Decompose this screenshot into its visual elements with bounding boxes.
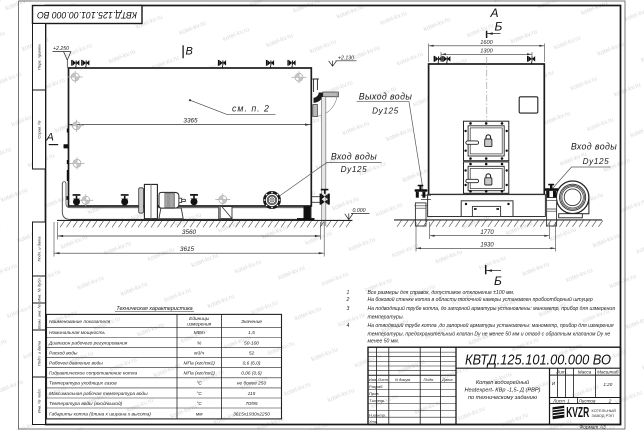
svg-text:Подп.: Подп.	[424, 377, 435, 382]
svg-text:°С: °С	[197, 381, 203, 387]
svg-text:Диапазон рабочего регулировани: Диапазон рабочего регулирования	[48, 340, 128, 346]
svg-text:3365: 3365	[183, 118, 198, 125]
svg-text:Dy125: Dy125	[341, 165, 368, 174]
svg-text:52: 52	[249, 350, 255, 356]
svg-text:2: 2	[608, 398, 612, 403]
svg-text:температуры, предохранительный: температуры, предохранительный клапан Dу…	[368, 331, 611, 338]
svg-text:0,6 (6,0): 0,6 (6,0)	[243, 361, 261, 367]
svg-text:1: 1	[567, 398, 570, 403]
svg-text:Б: Б	[495, 20, 503, 34]
svg-text:50-100: 50-100	[244, 340, 259, 346]
svg-text:Справ. №: Справ. №	[37, 120, 42, 139]
svg-text:1300: 1300	[480, 49, 493, 55]
svg-text:МВт: МВт	[194, 330, 205, 336]
svg-text:Heatexpert- КВр -1,5- Д (РВР): Heatexpert- КВр -1,5- Д (РВР)	[465, 388, 541, 394]
svg-text:Dy125: Dy125	[583, 157, 610, 166]
svg-text:Формат А3: Формат А3	[579, 424, 606, 430]
svg-text:Dy125: Dy125	[372, 107, 399, 116]
svg-text:°С: °С	[197, 401, 203, 407]
svg-text:2: 2	[346, 297, 350, 303]
svg-text:менее 50 мм.: менее 50 мм.	[368, 339, 400, 345]
svg-text:Изм.: Изм.	[369, 377, 378, 382]
svg-text:А: А	[46, 132, 54, 144]
svg-text:Температура уходящих газов: Температура уходящих газов	[49, 381, 117, 387]
svg-text:МПа (кгс/см2): МПа (кгс/см2)	[184, 361, 216, 367]
svg-text:не более 250: не более 250	[237, 381, 267, 387]
svg-text:см. п. 2: см. п. 2	[232, 104, 270, 114]
svg-text:Гидравлическое сопротивление к: Гидравлическое сопротивление котла	[49, 371, 137, 377]
svg-text:°С: °С	[197, 391, 203, 397]
svg-text:1:20: 1:20	[603, 382, 612, 387]
svg-text:Лист: Лист	[377, 377, 389, 382]
svg-text:Лист: Лист	[552, 398, 565, 403]
svg-text:измерения: измерения	[187, 322, 211, 327]
svg-text:1770: 1770	[480, 230, 494, 236]
svg-text:Вход воды: Вход воды	[571, 142, 617, 152]
svg-text:Температура воды (вход/выход): Температура воды (вход/выход)	[49, 401, 123, 407]
svg-text:Значение: Значение	[241, 319, 262, 325]
svg-text:Наименование показателя: Наименование показателя	[49, 319, 111, 325]
svg-text:Дата: Дата	[441, 377, 453, 382]
svg-text:МПа (кгс/см2): МПа (кгс/см2)	[184, 371, 216, 377]
svg-text:Номинальная мощность: Номинальная мощность	[49, 330, 106, 336]
svg-text:Единицы: Единицы	[189, 316, 210, 322]
svg-text:0,06 (0,6): 0,06 (0,6)	[241, 371, 262, 377]
svg-text:На подводящий трубе котла, д: На подводящий трубе котла, до запорной а…	[368, 305, 616, 312]
svg-text:1600: 1600	[480, 40, 493, 46]
svg-text:KVZR: KVZR	[566, 405, 589, 421]
svg-text:3: 3	[347, 306, 350, 312]
svg-text:А: А	[490, 6, 499, 20]
svg-text:Н.контр.: Н.контр.	[369, 412, 386, 417]
svg-text:Перв. примен.: Перв. примен.	[37, 43, 42, 70]
svg-text:КВТД.125.101.00.000 ВО: КВТД.125.101.00.000 ВО	[465, 352, 611, 368]
svg-text:Лит.: Лит.	[555, 370, 567, 375]
svg-text:мм: мм	[196, 413, 203, 418]
svg-text:3560: 3560	[182, 229, 197, 236]
svg-text:Подп. и дата: Подп. и дата	[37, 236, 42, 262]
svg-text:Все размеры для справок, допус: Все размеры для справок, допустимое откл…	[368, 290, 515, 296]
svg-text:по техническому заданию: по техническому заданию	[468, 395, 538, 401]
svg-text:м3/ч: м3/ч	[194, 350, 204, 356]
svg-text:Листов: Листов	[578, 398, 596, 403]
svg-text:На боковой стенке котла в обла: На боковой стенке котла в области топочн…	[368, 296, 593, 303]
svg-text:+2.130: +2.130	[338, 55, 354, 61]
svg-text:115: 115	[248, 391, 256, 397]
svg-text:Габариты котла (длина х ширина: Габариты котла (длина х ширина х высота)	[49, 412, 151, 418]
svg-text:Инв. № подл.: Инв. № подл.	[37, 388, 42, 413]
svg-text:1: 1	[347, 290, 350, 296]
svg-text:ЗАВОД РЭП: ЗАВОД РЭП	[592, 413, 614, 418]
svg-text:Пров.: Пров.	[369, 391, 380, 396]
svg-text:3615: 3615	[180, 246, 195, 253]
svg-text:Масштаб: Масштаб	[597, 370, 619, 375]
svg-text:Техническая характеристика: Техническая характеристика	[116, 306, 192, 312]
svg-text:4: 4	[347, 323, 350, 329]
svg-text:Инв. № дубл.: Инв. № дубл.	[37, 277, 42, 302]
svg-text:В: В	[186, 46, 193, 58]
svg-text:3615х1930х2250: 3615х1930х2250	[233, 412, 270, 418]
svg-text:На отводящий трубе котла ,до з: На отводящий трубе котла ,до запорной ар…	[368, 322, 614, 329]
svg-text:Вход воды: Вход воды	[331, 152, 377, 162]
svg-text:Утв.: Утв.	[369, 419, 378, 424]
svg-text:Расход воды: Расход воды	[49, 350, 78, 356]
svg-text:Т.контр.: Т.контр.	[369, 398, 385, 403]
svg-text:N докум.: N докум.	[395, 377, 411, 382]
svg-text:%: %	[197, 340, 202, 346]
svg-text:КВТД.125.101.00.000 ВО: КВТД.125.101.00.000 ВО	[36, 9, 137, 20]
svg-text:1930: 1930	[480, 242, 494, 248]
svg-text:Максимальная рабочая температу: Максимальная рабочая температура воды	[49, 391, 148, 397]
svg-text:Котел водогрейный: Котел водогрейный	[476, 379, 529, 386]
svg-text:Взам. инв. №: Взам. инв. №	[37, 303, 42, 328]
svg-text:Масса: Масса	[578, 370, 592, 375]
svg-text:Разраб.: Разраб.	[369, 384, 383, 389]
svg-text:Б: Б	[494, 274, 502, 288]
svg-text:Выход воды: Выход воды	[359, 92, 413, 102]
svg-text:температуры.: температуры.	[368, 314, 405, 320]
svg-text:1,5: 1,5	[248, 330, 255, 336]
svg-text:70/95: 70/95	[245, 401, 257, 407]
svg-text:Рабочее давление воды: Рабочее давление воды	[49, 361, 103, 367]
svg-text:Подп. и дата: Подп. и дата	[37, 340, 42, 366]
